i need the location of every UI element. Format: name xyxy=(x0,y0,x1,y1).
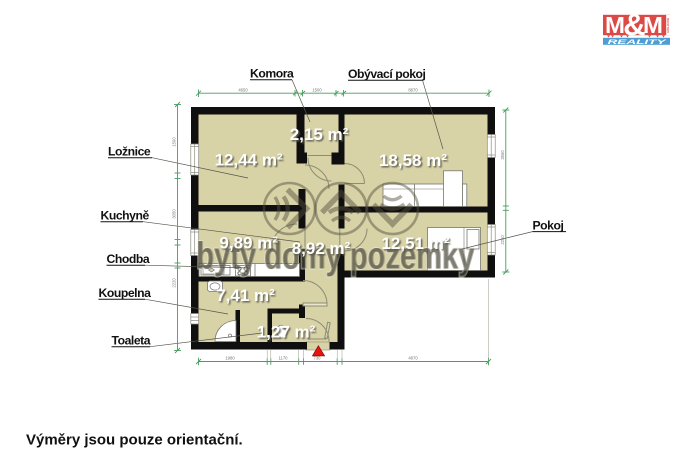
svg-text:1170: 1170 xyxy=(278,356,288,361)
svg-text:3550: 3550 xyxy=(500,150,505,160)
svg-text:Pokoj: Pokoj xyxy=(533,218,564,232)
svg-text:Komora: Komora xyxy=(250,67,294,81)
svg-text:Ložnice: Ložnice xyxy=(108,145,151,159)
svg-text:REALITY: REALITY xyxy=(608,39,669,46)
svg-text:3050: 3050 xyxy=(172,209,177,219)
svg-text:Chodba: Chodba xyxy=(107,252,150,266)
svg-text:1,27 m²: 1,27 m² xyxy=(257,323,316,342)
svg-text:8870: 8870 xyxy=(408,88,418,93)
svg-text:Obývací pokoj: Obývací pokoj xyxy=(348,67,426,81)
svg-text:M: M xyxy=(605,12,625,38)
svg-text:2,15 m²: 2,15 m² xyxy=(290,125,349,144)
svg-text:9,89 m²: 9,89 m² xyxy=(219,234,278,253)
svg-text:7,41 m²: 7,41 m² xyxy=(216,286,275,305)
svg-text:M: M xyxy=(643,12,663,38)
svg-text:18,58 m²: 18,58 m² xyxy=(379,151,447,170)
svg-text:1500: 1500 xyxy=(172,137,177,147)
svg-text:730: 730 xyxy=(314,356,322,361)
svg-text:1980: 1980 xyxy=(225,356,235,361)
svg-text:1500: 1500 xyxy=(312,88,322,93)
svg-text:12,44 m²: 12,44 m² xyxy=(215,151,283,170)
svg-text:4870: 4870 xyxy=(408,356,418,361)
svg-text:Koupelna: Koupelna xyxy=(99,286,152,300)
svg-text:Toaleta: Toaleta xyxy=(112,334,151,348)
svg-text:Kuchyně: Kuchyně xyxy=(101,209,150,223)
svg-text:HOLDING: HOLDING xyxy=(666,17,670,33)
svg-text:4650: 4650 xyxy=(238,88,248,93)
svg-text:2250: 2250 xyxy=(500,235,505,245)
svg-text:8,92 m²: 8,92 m² xyxy=(292,239,351,258)
svg-text:2220: 2220 xyxy=(172,278,177,288)
svg-text:Výměry jsou pouze orientační.: Výměry jsou pouze orientační. xyxy=(26,432,243,449)
svg-text:12,51 m²: 12,51 m² xyxy=(381,234,449,253)
